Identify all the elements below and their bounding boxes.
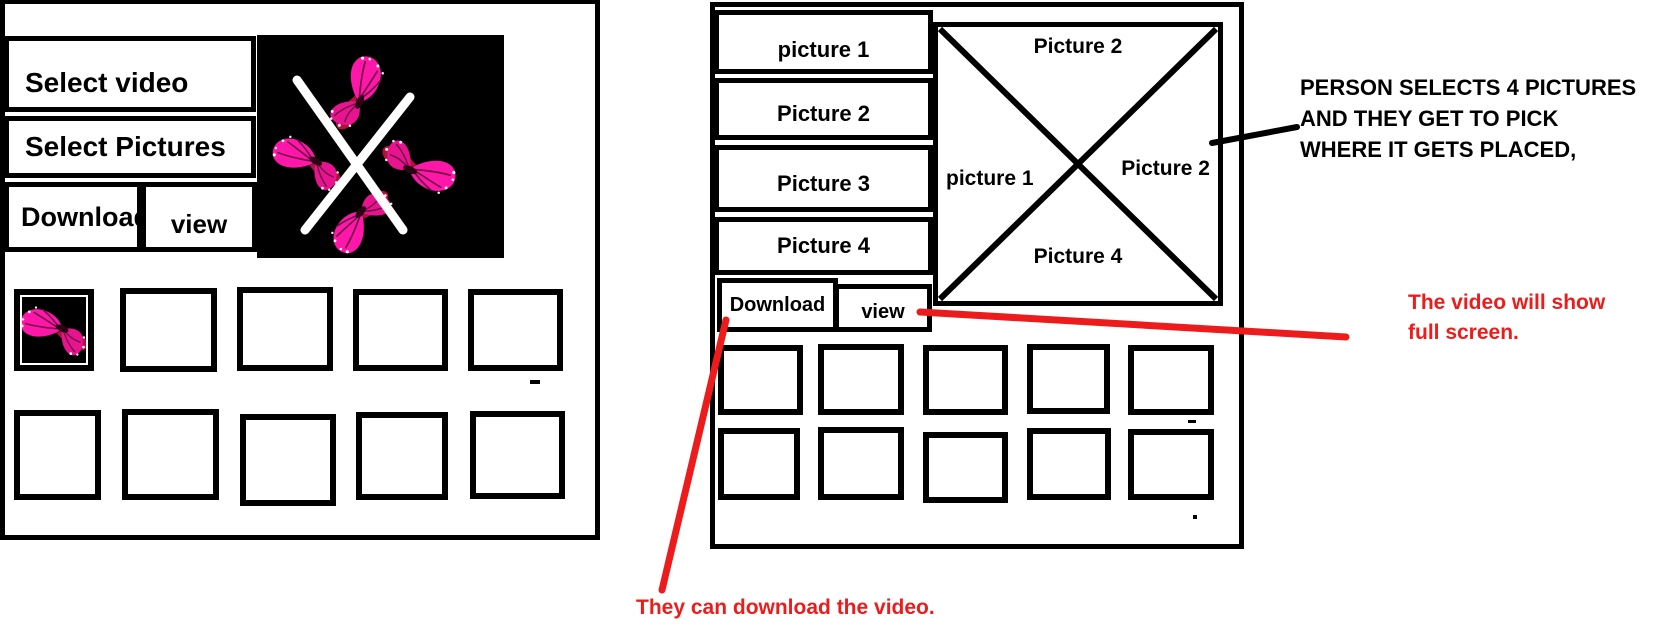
thumbnail-slot[interactable]: [122, 409, 219, 500]
thumbnail-slot[interactable]: [470, 411, 565, 499]
select-video-button[interactable]: Select video: [4, 36, 256, 112]
picture-3-button[interactable]: Picture 3: [714, 145, 933, 212]
fullscreen-note-line: The video will show: [1408, 288, 1605, 318]
view-button-left[interactable]: view: [141, 182, 257, 252]
view-button-right[interactable]: view: [834, 284, 932, 332]
download-label: Download: [21, 202, 150, 233]
thumbnail-slot[interactable]: [120, 288, 217, 372]
thumbnail-slot[interactable]: [1027, 428, 1111, 500]
fullscreen-note-line: full screen.: [1408, 318, 1605, 348]
view-label: view: [171, 209, 227, 240]
picture-1-label: picture 1: [778, 37, 870, 63]
wireframe-mockup: Select video Select Pictures Download vi…: [0, 0, 1664, 636]
thumbnail-slot[interactable]: [1027, 344, 1110, 414]
picture-4-button[interactable]: Picture 4: [714, 217, 933, 275]
select-video-label: Select video: [25, 67, 188, 99]
download-label: Download: [730, 294, 826, 317]
picture-3-label: Picture 3: [777, 171, 870, 197]
thumbnail-slot[interactable]: [923, 345, 1008, 415]
placement-label-bottom: Picture 4: [938, 245, 1218, 269]
thumbnail-slot[interactable]: [718, 345, 803, 415]
butterflies-x-video-icon: [257, 35, 504, 258]
stray-mark: [1193, 515, 1197, 519]
download-button-left[interactable]: Download: [4, 182, 142, 252]
thumbnail-slot[interactable]: [718, 428, 800, 500]
selection-note-line: AND THEY GET TO PICK: [1300, 103, 1636, 134]
download-button-right[interactable]: Download: [717, 278, 838, 332]
selection-note: PERSON SELECTS 4 PICTURES AND THEY GET T…: [1300, 72, 1636, 165]
stray-mark: [530, 380, 540, 384]
select-pictures-label: Select Pictures: [25, 131, 226, 163]
thumbnail-slot[interactable]: [353, 289, 448, 371]
thumbnail-slot[interactable]: [818, 344, 904, 415]
stray-mark: [495, 244, 501, 247]
view-label: view: [861, 301, 904, 324]
video-preview[interactable]: [257, 35, 504, 258]
picture-2-button[interactable]: Picture 2: [714, 78, 933, 140]
placement-label-right: Picture 2: [1121, 157, 1210, 181]
select-pictures-button[interactable]: Select Pictures: [4, 116, 256, 178]
placement-label-left: picture 1: [946, 167, 1034, 191]
thumbnail-butterfly[interactable]: [14, 289, 94, 371]
thumbnail-slot[interactable]: [356, 412, 448, 500]
thumbnail-slot[interactable]: [240, 414, 336, 506]
picture-1-button[interactable]: picture 1: [714, 10, 933, 74]
thumbnail-slot[interactable]: [1128, 345, 1214, 415]
thumbnail-slot[interactable]: [237, 287, 333, 371]
butterfly-image-icon: [22, 297, 86, 363]
placement-label-top: Picture 2: [938, 35, 1218, 59]
thumbnail-slot[interactable]: [1128, 429, 1214, 500]
selection-note-line: WHERE IT GETS PLACED,: [1300, 134, 1636, 165]
placement-box[interactable]: Picture 2 picture 1 Picture 2 Picture 4: [933, 22, 1223, 306]
stray-mark: [1188, 420, 1196, 423]
thumbnail-slot[interactable]: [923, 432, 1008, 503]
picture-2-label: Picture 2: [777, 101, 870, 127]
thumbnail-slot[interactable]: [818, 427, 904, 500]
fullscreen-note: The video will show full screen.: [1408, 288, 1605, 348]
picture-4-label: Picture 4: [777, 233, 870, 259]
thumbnail-slot[interactable]: [468, 289, 563, 371]
selection-note-line: PERSON SELECTS 4 PICTURES: [1300, 72, 1636, 103]
download-note: They can download the video.: [636, 592, 935, 623]
thumbnail-slot[interactable]: [14, 410, 101, 500]
